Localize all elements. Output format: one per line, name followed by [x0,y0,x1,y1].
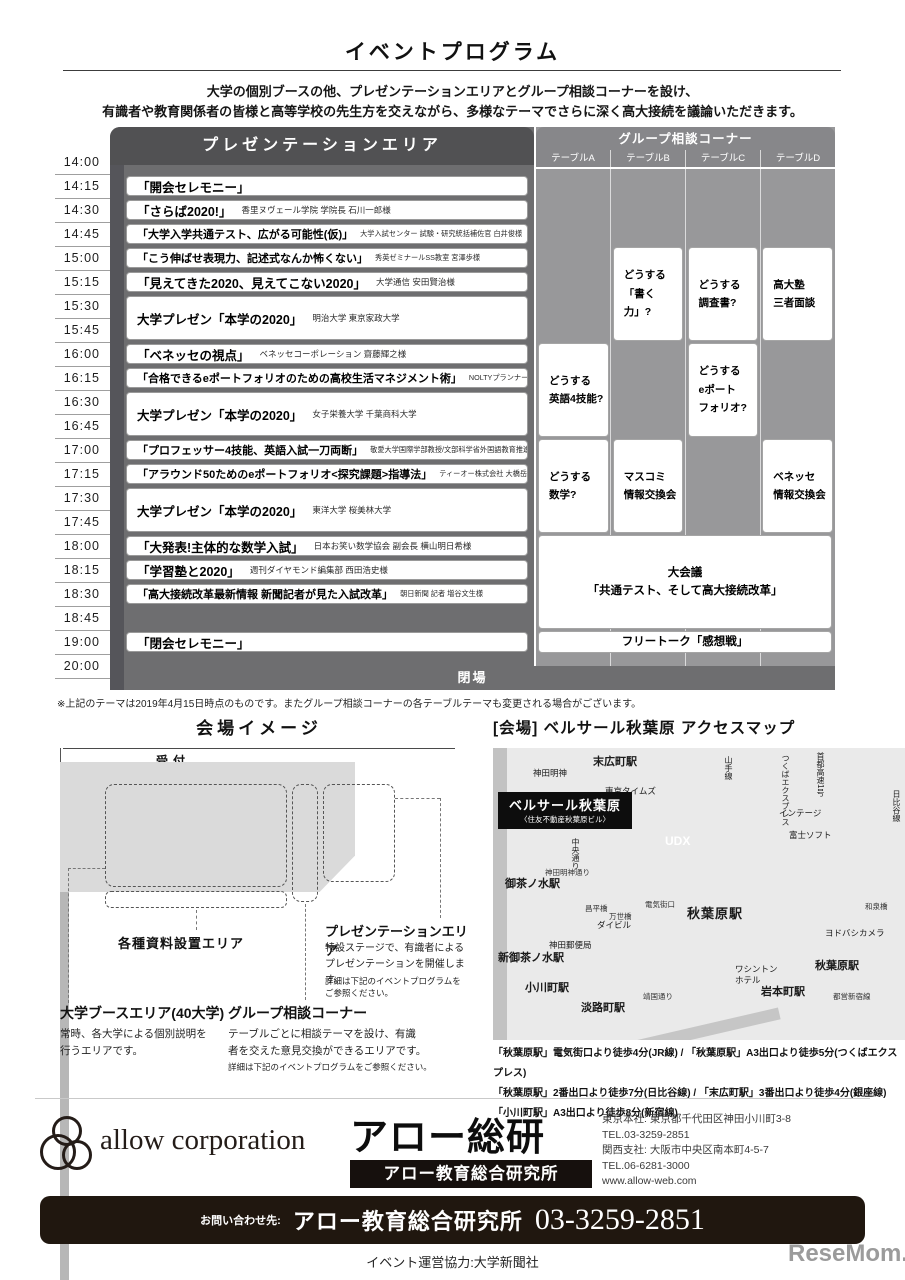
session-card: 大学プレゼン「本学の2020」明治大学 東京家政大学 [126,296,528,340]
time-gridline [55,294,110,295]
time-label: 20:00 [64,654,100,678]
materials-strip [105,891,287,908]
reception-tick [60,755,61,762]
group-theme-text: マスコミ 情報交換会 [614,468,677,505]
session-title: 「プロフェッサー4技能、英語入試一刀両断」 [137,442,363,458]
session-speaker: NOLTYプランナーズ様 [469,373,528,383]
map-label: 和泉橋 [865,902,888,911]
logo-ring-icon [62,1140,92,1170]
presentation-area-note: 詳細は下記のイベントプログラムを ご参照ください。 [325,975,461,999]
map-label: つくばエクスプレス [780,754,790,826]
contact-phone: 03-3259-2851 [535,1203,705,1237]
map-label: 神田明神 [533,768,567,779]
session-speaker: 日本お笑い数学協会 副会長 横山明日希様 [314,540,472,552]
closing-label: 閉場 [110,666,835,690]
connector-line [68,868,105,869]
time-label: 16:00 [64,342,100,366]
time-label: 15:00 [64,246,100,270]
time-gridline [55,630,110,631]
map-road [495,1008,780,1040]
contact-bar: お問い合わせ先: アロー教育総合研究所 03-3259-2851 [40,1196,865,1244]
session-title: 「こう伸ばせ表現力、記述式なんか怖くない」 [137,250,368,266]
session-title: 「開会セレモニー」 [137,177,250,196]
time-gridline [55,438,110,439]
map-label: ワシントン ホテル [735,964,778,985]
map-label: 中央通り [570,838,580,870]
address-line: 東京本社: 東京都千代田区神田小川町3-8 [602,1112,791,1128]
map-label: ダイビル [597,920,631,931]
session-title: 大学プレゼン「本学の2020」 [137,309,302,328]
session-card: 「プロフェッサー4技能、英語入試一刀両断」敬愛大学国際学部教授/文部科学省外国語… [126,440,528,460]
booth-cell [60,1100,69,1113]
booth-cell [60,1178,69,1191]
connector-line [395,798,440,799]
map-label: 富士ソフト [789,830,832,841]
group-theme-text: ベネッセ 情報交換会 [763,468,826,505]
map-label: 神田明神通り [545,868,590,877]
address-line: TEL.03-3259-2851 [602,1128,791,1144]
session-speaker: ティーオー株式会社 大橋岳様 [439,469,528,479]
map-label: 電気街口 [645,900,675,909]
venue-callout-title: ベルサール秋葉原 [498,795,632,814]
session-card: 「学習塾と2020」週刊ダイヤモンド編集部 西田浩史様 [126,560,528,580]
time-gridline [55,318,110,319]
map-label: 御茶ノ水駅 [505,878,560,892]
session-card: 「開会セレモニー」 [126,176,528,196]
time-gridline [55,558,110,559]
session-speaker: 大学通信 安田賢治様 [376,276,455,288]
time-label: 17:15 [64,462,100,486]
time-gridline [55,606,110,607]
address-line: 関西支社: 大阪市中央区南本町4-5-7 [602,1143,791,1159]
group-theme-text: 高大塾 三者面談 [763,276,815,313]
map-label: 新御茶ノ水駅 [498,952,564,966]
session-card: 「高大接続改革最新情報 新聞記者が見た入試改革」朝日新聞 記者 増谷文生様 [126,584,528,604]
time-gridline [55,534,110,535]
session-card: 「大学入学共通テスト、広がる可能性(仮)」大学入試センター 試験・研究統括補佐官… [126,224,528,244]
access-map: ベルサール秋葉原 〈住友不動産秋葉原ビル〉 末広町駅神田明神東京タイムズ タワー… [493,748,905,1040]
time-label: 17:45 [64,510,100,534]
materials-area-label: 各種資料設置エリア [118,933,244,952]
group-theme-card: どうする 調査書? [688,247,759,341]
brand-subtitle-bar: アロー教育総合研究所 [350,1160,592,1188]
time-label: 16:45 [64,414,100,438]
session-card: 「大発表!主体的な数学入試」日本お笑い数学協会 副会長 横山明日希様 [126,536,528,556]
footer-divider [35,1098,870,1099]
booth-area-desc: 常時、各大学による個別説明を 行うエリアです。 [60,1026,207,1060]
time-gridline [55,198,110,199]
booth-area-label: 大学ブースエリア(40大学) [60,1003,224,1023]
map-label: 神田郵便局 [549,940,592,951]
time-gridline [55,270,110,271]
group-theme-card: マスコミ 情報交換会 [613,439,684,533]
time-label: 14:15 [64,174,100,198]
company-address: 東京本社: 東京都千代田区神田小川町3-8 TEL.03-3259-2851 関… [602,1112,791,1190]
map-label: 都営新宿線 [833,992,871,1001]
group-theme-card: ベネッセ 情報交換会 [762,439,833,533]
time-label: 18:45 [64,606,100,630]
time-label: 18:00 [64,534,100,558]
group-theme-card: どうする 「書く力」? [613,247,684,341]
group-corner-desc: テーブルごとに相談テーマを設け、有識 者を交えた意見交換ができるエリアです。 [228,1026,426,1060]
session-title: 大学プレゼン「本学の2020」 [137,501,302,520]
connector-line [440,798,441,918]
group-theme-card: どうする eポート フォリオ? [688,343,759,437]
presentation-zone [323,784,395,882]
time-gridline [55,390,110,391]
session-speaker: 明治大学 東京家政大学 [312,312,399,324]
group-theme-card: どうする 数学? [538,439,609,533]
contact-prefix: お問い合わせ先: [200,1212,281,1228]
map-label: 秋葉原駅 [815,960,859,974]
time-label: 15:15 [64,270,100,294]
group-theme-text: どうする 「書く力」? [614,266,683,321]
map-label: ヨドバシカメラ [825,928,885,939]
company-logo-text: allow corporation [100,1124,305,1157]
map-label: 首都高速1号 [815,752,825,796]
map-label: 昌平橋 [585,904,608,913]
session-card: 「ベネッセの視点」ベネッセコーポレーション 齋藤輝之様 [126,344,528,364]
group-theme-text: フリートーク「感想戦」 [539,633,831,651]
session-speaker: 週刊ダイヤモンド編集部 西田浩史様 [250,564,388,576]
time-label: 15:30 [64,294,100,318]
resemom-watermark: ReseMom. [788,1240,905,1268]
session-speaker: 敬愛大学国際学部教授/文部科学省外国語教育推進室教科調査官 向後秀明様 [370,445,528,455]
time-gridline [55,222,110,223]
venue-section-title: 会場イメージ [63,714,455,749]
venue-diagram: 受付 各種資料設置エリア プレゼンテーションエリア 特設ステージで、有識者による… [60,748,472,1088]
time-label: 14:30 [64,198,100,222]
reception-tick [60,748,61,755]
time-gridline [55,342,110,343]
page-title: イベントプログラム [0,36,905,66]
time-label: 14:45 [64,222,100,246]
access-line-2: 「秋葉原駅」2番出口より徒歩7分(日比谷線) / 「末広町駅」3番出口より徒歩4… [493,1084,905,1104]
session-title: 「アラウンド50ためのeポートフォリオ<探究課題>指導法」 [137,466,432,482]
time-gridline [55,366,110,367]
time-gridline [55,582,110,583]
session-title: 「大学入学共通テスト、広がる可能性(仮)」 [137,226,353,242]
group-corner-label: グループ相談コーナー [228,1003,367,1023]
session-speaker: ベネッセコーポレーション 齋藤輝之様 [260,348,407,360]
event-program-page: イベントプログラム 大学の個別ブースの他、プレゼンテーションエリアとグループ相談… [0,0,905,1280]
presentation-events: 「開会セレモニー」「さらば2020!」香里ヌヴェール学院 学院長 石川一郎様「大… [126,162,528,690]
group-corner-note: 詳細は下記のイベントプログラムをご参照ください。 [228,1061,432,1073]
session-card: 「合格できるeポートフォリオのための高校生活マネジメント術」NOLTYプランナー… [126,368,528,388]
session-title: 大学プレゼン「本学の2020」 [137,405,302,424]
session-title: 「合格できるeポートフォリオのための高校生活マネジメント術」 [137,370,462,386]
session-speaker: 大学入試センター 試験・研究統括補佐官 白井俊様 [360,229,522,239]
venue-callout-subtitle: 〈住友不動産秋葉原ビル〉 [498,814,632,825]
session-card: 「こう伸ばせ表現力、記述式なんか怖くない」秀英ゼミナールSS教室 宮澤歩様 [126,248,528,268]
time-gridline [55,510,110,511]
connector-line [68,868,69,1003]
map-label: UDX [665,834,690,849]
time-label: 16:15 [64,366,100,390]
time-gridline [55,462,110,463]
time-gridline [55,654,110,655]
session-speaker: 秀英ゼミナールSS教室 宮澤歩様 [375,253,480,263]
intro-text: 大学の個別ブースの他、プレゼンテーションエリアとグループ相談コーナーを設け、 有… [0,82,905,122]
map-label: 靖国通り [643,992,673,1001]
intro-line-1: 大学の個別ブースの他、プレゼンテーションエリアとグループ相談コーナーを設け、 [0,82,905,102]
address-line: www.allow-web.com [602,1174,791,1190]
booth-zone [105,784,287,887]
intro-line-2: 有識者や教育関係者の皆様と高等学校の先生方を交えながら、多様なテーマでさらに深く… [0,102,905,122]
map-label: 末広町駅 [593,756,637,770]
cooperation-credit: イベント運営協力:大学新聞社 [0,1252,905,1271]
time-label: 17:00 [64,438,100,462]
group-theme-text: どうする 英語4技能? [539,372,603,409]
session-speaker: 香里ヌヴェール学院 学院長 石川一郎様 [241,204,390,216]
session-title: 「ベネッセの視点」 [137,345,250,364]
session-speaker: 東洋大学 桜美林大学 [312,504,391,516]
presentation-left-strip [110,165,124,690]
time-gutter: 14:0014:1514:3014:4515:0015:1515:3015:45… [55,162,110,694]
booth-cell [60,1061,69,1074]
map-label: 小川町駅 [525,982,569,996]
time-label: 16:30 [64,390,100,414]
group-theme-text: 大会議 「共通テスト、そして高大接続改革」 [539,564,831,601]
contact-organization: アロー教育総合研究所 [293,1204,523,1236]
session-card: 大学プレゼン「本学の2020」女子栄養大学 千葉商科大学 [126,392,528,436]
time-gridline [55,486,110,487]
session-card: 「閉会セレモニー」 [126,632,528,652]
session-card: 「見えてきた2020、見えてこない2020」大学通信 安田賢治様 [126,272,528,292]
time-label: 14:00 [64,150,100,174]
group-theme-card: 大会議 「共通テスト、そして高大接続改革」 [538,535,832,629]
time-label: 19:00 [64,630,100,654]
map-label: 淡路町駅 [581,1002,625,1016]
time-gridline [55,246,110,247]
session-title: 「大発表!主体的な数学入試」 [137,537,304,556]
venue-callout: ベルサール秋葉原 〈住友不動産秋葉原ビル〉 [498,792,632,829]
time-gridline [55,174,110,175]
session-speaker: 朝日新聞 記者 増谷文生様 [400,589,483,599]
group-theme-card: フリートーク「感想戦」 [538,631,832,653]
group-corner-events: どうする 「書く力」?どうする 調査書?高大塾 三者面談どうする 英語4技能?ど… [536,162,835,666]
group-strip [292,784,318,902]
map-label: 日比谷線 [891,790,901,822]
session-speaker: 女子栄養大学 千葉商科大学 [312,408,416,420]
group-theme-card: どうする 英語4技能? [538,343,609,437]
session-card: 大学プレゼン「本学の2020」東洋大学 桜美林大学 [126,488,528,532]
access-line-1: 「秋葉原駅」電気街口より徒歩4分(JR線) / 「秋葉原駅」A3出口より徒歩5分… [493,1044,905,1084]
time-label: 18:30 [64,582,100,606]
time-label: 15:45 [64,318,100,342]
schedule-footnote: ※上記のテーマは2019年4月15日時点のものです。またグループ相談コーナーの各… [57,695,641,710]
connector-line [305,904,306,1000]
group-theme-card: 高大塾 三者面談 [762,247,833,341]
session-title: 「高大接続改革最新情報 新聞記者が見た入試改革」 [137,586,393,602]
address-line: TEL.06-6281-3000 [602,1159,791,1175]
session-card: 「さらば2020!」香里ヌヴェール学院 学院長 石川一郎様 [126,200,528,220]
map-label: 秋葉原駅 [687,906,743,922]
group-theme-text: どうする 調査書? [689,276,741,313]
session-card: 「アラウンド50ためのeポートフォリオ<探究課題>指導法」ティーオー株式会社 大… [126,464,528,484]
group-theme-text: どうする eポート フォリオ? [689,362,747,417]
time-label: 18:15 [64,558,100,582]
time-gridline [55,414,110,415]
map-label: 山手線 [723,756,733,780]
session-title: 「学習塾と2020」 [137,561,240,580]
time-gridline [55,678,110,679]
presentation-area-header: プレゼンテーションエリア [110,127,534,165]
booth-cell [60,1074,69,1087]
group-corner-header: グループ相談コーナー [536,127,835,150]
session-title: 「見えてきた2020、見えてこない2020」 [137,273,366,292]
map-label: 岩本町駅 [761,986,805,1000]
brand-name: アロー総研 [350,1106,545,1161]
map-section-title: [会場] ベルサール秋葉原 アクセスマップ [493,716,795,738]
session-title: 「さらば2020!」 [137,201,231,220]
session-title: 「閉会セレモニー」 [137,633,250,652]
time-label: 17:30 [64,486,100,510]
title-divider [63,70,841,71]
group-theme-text: どうする 数学? [539,468,591,505]
connector-line [196,910,197,930]
